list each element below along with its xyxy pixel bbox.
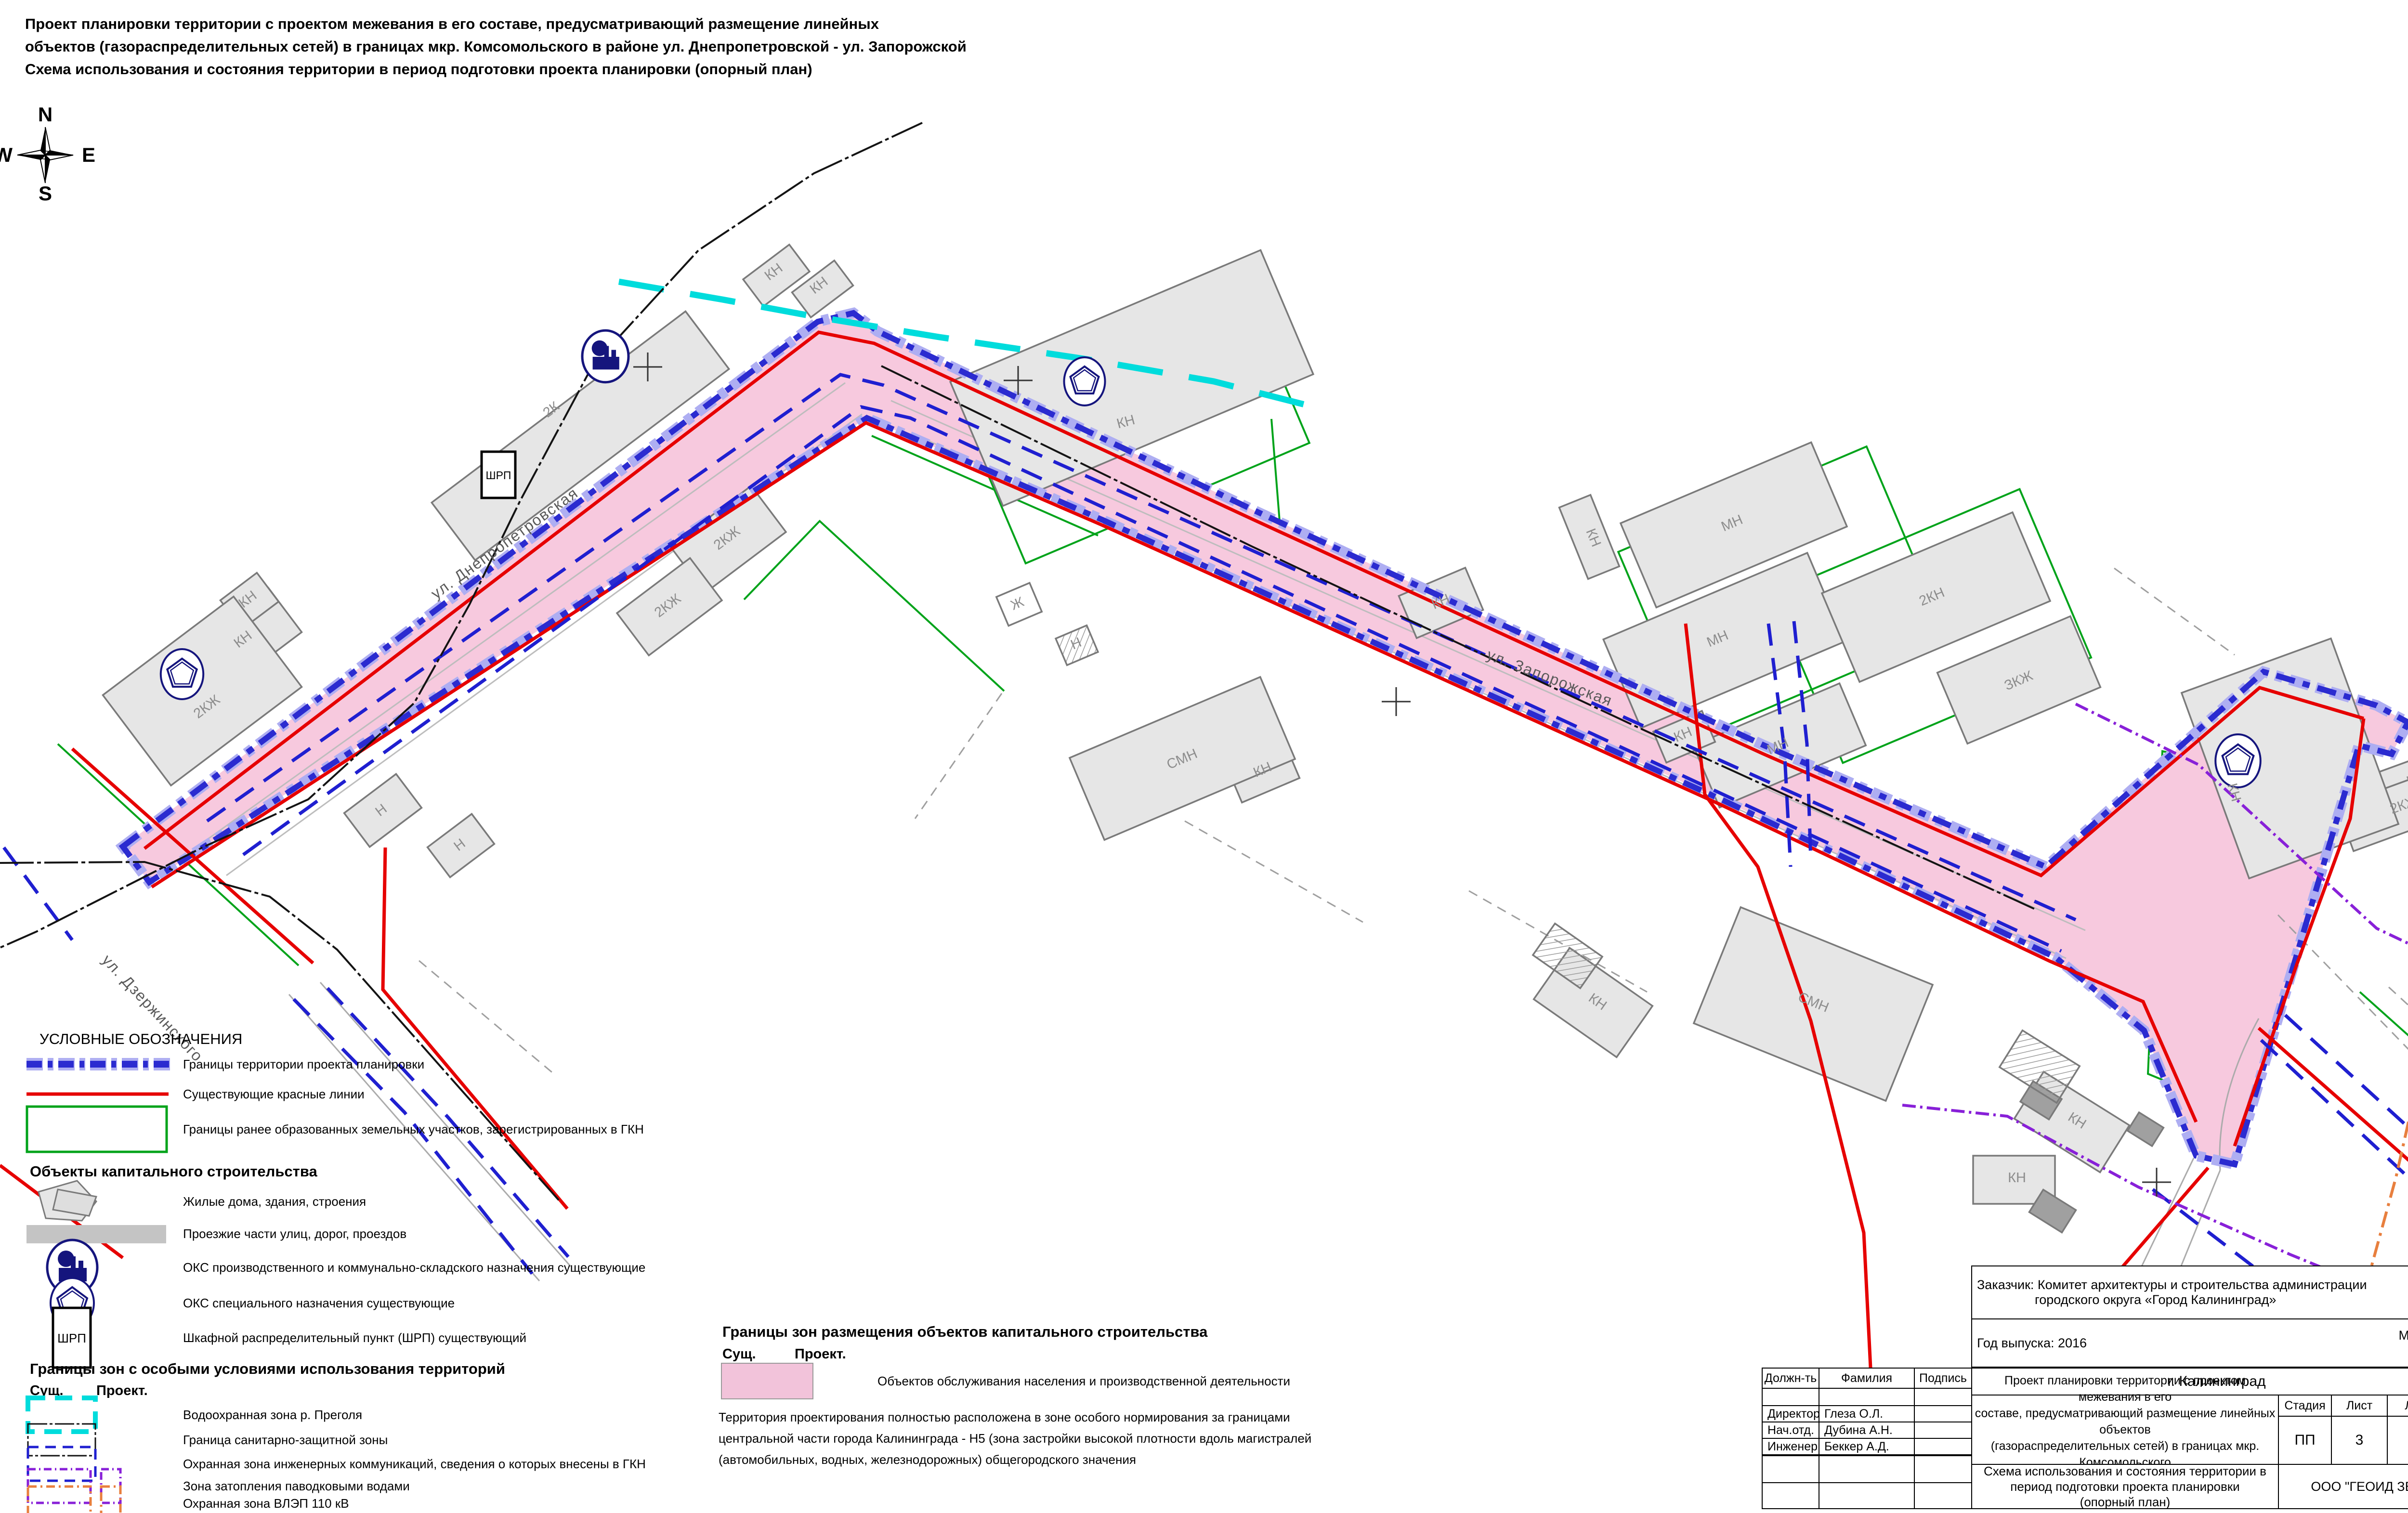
legend-zone-item: Охранная зона ВЛЭП 110 кВ: [24, 1482, 349, 1513]
stamp-name: Дубина А.Н.: [1819, 1422, 1915, 1439]
stamp-sheet-label-cell: Лист: [2331, 1395, 2388, 1417]
stamp-empty-1a: [1762, 1388, 1819, 1406]
stamp-year: Год выпуска: 2016: [1977, 1336, 2087, 1351]
title-line-2: объектов (газораспределительных сетей) в…: [25, 38, 967, 55]
stamp-scheme-line: (опорный план): [2080, 1494, 2171, 1510]
legend-item: Существующие красные линии: [24, 1084, 365, 1104]
stamp-sheet-value: 3: [2331, 1416, 2388, 1465]
title-block-upper: Заказчик: Комитет архитектуры и строител…: [1971, 1265, 2408, 1368]
stamp-position: Инженер: [1762, 1438, 1819, 1455]
stamp-position: Директор: [1762, 1405, 1819, 1422]
oks-special-icon: [2215, 734, 2261, 787]
legend2-note-line: Территория проектирования полностью расп…: [719, 1410, 1290, 1425]
stamp-project-line: Проект планировки территории с проектом …: [1972, 1372, 2278, 1405]
legend-item: Границы территории проекта планировки: [24, 1055, 424, 1074]
title-line-1: Проект планировки территории с проектом …: [25, 15, 879, 32]
plan-sheet: { "title": { "line1": "Проект планировки…: [0, 0, 2408, 1513]
redline-swatch: [24, 1084, 183, 1104]
svg-text:W: W: [0, 143, 13, 166]
pink-zone-swatch: [719, 1359, 877, 1403]
stamp-stage-label-cell: Стадия: [2278, 1395, 2332, 1417]
stamp-col-name: Фамилия: [1819, 1368, 1915, 1389]
stamp-customer-line1: Заказчик: Комитет архитектуры и строител…: [1977, 1278, 2367, 1292]
legend-item-label: Охранная зона ВЛЭП 110 кВ: [183, 1496, 349, 1511]
svg-text:ШРП: ШРП: [57, 1331, 86, 1345]
building-label: КН: [2008, 1170, 2026, 1186]
vlep-swatch: [24, 1482, 183, 1513]
legend-item-label: Существующие красные линии: [183, 1087, 365, 1102]
survey-cross-marks: [633, 352, 2171, 1197]
stamp-scheme-line: период подготовки проекта планировки: [2010, 1479, 2239, 1494]
legend-item-label: Шкафной распределительный пункт (ШРП) су…: [183, 1330, 526, 1345]
oks-industrial-icon: [582, 330, 628, 382]
stamp-scheme-line: Схема использования и состояния территор…: [1984, 1463, 2266, 1479]
stamp-year-cell: Год выпуска: 2016 Масштаб 1:1000: [1971, 1318, 2408, 1368]
legend2-note-line: (автомобильных, водных, железнодорожных)…: [719, 1452, 1136, 1467]
stamp-scheme-cell: Схема использования и состояния территор…: [1971, 1464, 2279, 1509]
stamp-sheets-value: 7: [2387, 1416, 2408, 1465]
stamp-signature: [1914, 1405, 1972, 1422]
legend-item-label: Жилые дома, здания, строения: [183, 1194, 366, 1209]
legend2-item-label: Объектов обслуживания населения и произв…: [877, 1374, 1290, 1389]
stamp-empty-2a: [1762, 1455, 1819, 1483]
svg-text:ШРП: ШРП: [486, 469, 511, 482]
stamp-stage-value: ПП: [2278, 1416, 2332, 1465]
gkn-swatch: [24, 1103, 183, 1156]
legend2-heading: Границы зон размещения объектов капиталь…: [722, 1323, 1207, 1341]
svg-text:N: N: [38, 103, 52, 126]
shrp-map-symbol: ШРП: [482, 452, 515, 498]
stamp-name: Глеза О.Л.: [1819, 1405, 1915, 1422]
stamp-scale-label: Масштаб: [2398, 1328, 2408, 1343]
outer-roads: [289, 982, 2259, 1425]
buildings-layer: [103, 245, 2408, 1233]
stamp-empty-2b: [1819, 1455, 1915, 1483]
legend2-item: Объектов обслуживания населения и произв…: [719, 1359, 1290, 1403]
legend-zones-heading: Границы зон с особыми условиями использо…: [30, 1360, 505, 1378]
stamp-signature: [1914, 1438, 1972, 1455]
sheet-title: Проект планировки территории с проектом …: [25, 13, 967, 80]
stamp-signature: [1914, 1422, 1972, 1439]
oks-special-icon: [161, 649, 203, 699]
legend-item: Границы ранее образованных земельных уча…: [24, 1103, 644, 1156]
legend-item-label: ОКС производственного и коммунально-скла…: [183, 1260, 645, 1275]
svg-text:S: S: [39, 182, 52, 205]
legend2-note-line: центральной части города Калининграда - …: [719, 1431, 1311, 1446]
stamp-project-line: составе, предусматривающий размещение ли…: [1972, 1405, 2278, 1438]
stamp-customer-cell: Заказчик: Комитет архитектуры и строител…: [1971, 1265, 2408, 1319]
stamp-empty-1c: [1914, 1388, 1972, 1406]
stamp-empty-3a: [1762, 1482, 1819, 1509]
stamp-position: Нач.отд.: [1762, 1422, 1819, 1439]
stamp-empty-3b: [1819, 1482, 1915, 1509]
legend-item-label: Границы территории проекта планировки: [183, 1057, 424, 1072]
oks-special-icon: [1064, 357, 1105, 405]
stamp-sheets-label-cell: Листов: [2387, 1395, 2408, 1417]
stamp-empty-1b: [1819, 1388, 1915, 1406]
title-block-lower: Должн-ть Фамилия Подпись ДиректорГлеза О…: [1762, 1368, 2408, 1509]
building-footprint: [2128, 1112, 2164, 1146]
svg-text:E: E: [82, 143, 95, 166]
stamp-name: Беккер А.Д.: [1819, 1438, 1915, 1455]
legend-item-label: Границы ранее образованных земельных уча…: [183, 1122, 644, 1137]
stamp-col-position: Должн-ть: [1762, 1368, 1819, 1389]
boundary-swatch: [24, 1055, 183, 1074]
stamp-company-cell: ООО "ГЕОИД ЗЕМ": [2278, 1464, 2408, 1509]
stamp-col-sign: Подпись: [1914, 1368, 1972, 1389]
stamp-empty-3c: [1914, 1482, 1972, 1509]
compass-rose: N E S W: [0, 103, 95, 205]
street-label: ул. Дзержинского: [99, 951, 207, 1065]
stamp-customer-line2: городского округа «Город Калининград»: [1977, 1292, 2276, 1307]
stamp-project-cell: Проект планировки территории с проектом …: [1971, 1395, 2279, 1465]
legend-heading: УСЛОВНЫЕ ОБОЗНАЧЕНИЯ: [39, 1030, 242, 1048]
title-line-3: Схема использования и состояния территор…: [25, 61, 812, 78]
stamp-company: ООО "ГЕОИД ЗЕМ": [2311, 1479, 2408, 1494]
stamp-empty-2c: [1914, 1455, 1972, 1483]
